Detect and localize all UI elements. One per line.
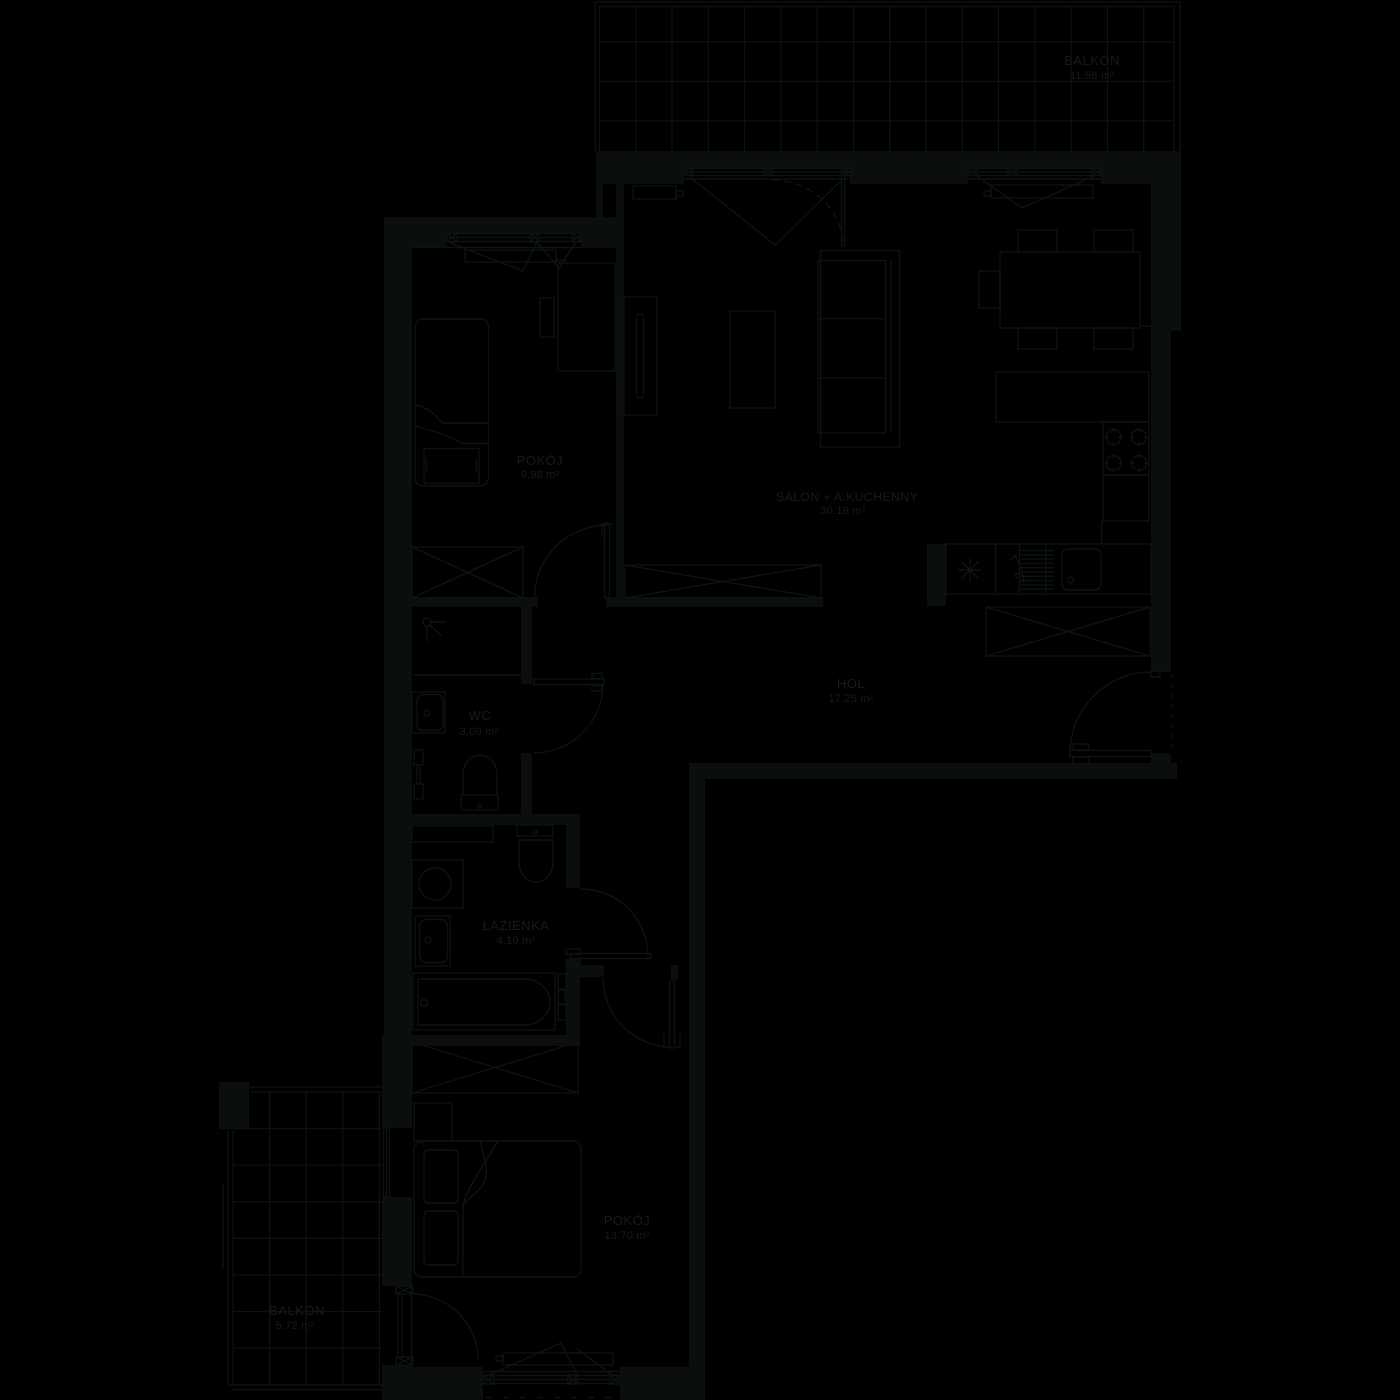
svg-text:3.09 m²: 3.09 m² — [460, 726, 499, 738]
svg-text:17.25 m²: 17.25 m² — [828, 693, 873, 705]
svg-text:13.70 m²: 13.70 m² — [604, 1230, 649, 1242]
svg-text:BALKON: BALKON — [1064, 53, 1120, 68]
svg-text:POKÓJ: POKÓJ — [517, 453, 564, 468]
svg-text:POKÓJ: POKÓJ — [604, 1213, 651, 1228]
svg-text:WC: WC — [469, 708, 492, 723]
svg-text:9.98 m²: 9.98 m² — [521, 469, 560, 481]
svg-text:4.10 m²: 4.10 m² — [497, 935, 536, 947]
svg-text:HOL: HOL — [837, 676, 865, 691]
svg-text:30.19 m²: 30.19 m² — [820, 505, 865, 517]
svg-text:BALKON: BALKON — [269, 1303, 325, 1318]
svg-text:ŁAZIENKA: ŁAZIENKA — [483, 918, 550, 933]
svg-text:SALON + A.KUCHENNY: SALON + A.KUCHENNY — [776, 490, 918, 504]
svg-text:11.58 m²: 11.58 m² — [1070, 70, 1114, 82]
svg-text:5.72 m²: 5.72 m² — [276, 1320, 315, 1332]
